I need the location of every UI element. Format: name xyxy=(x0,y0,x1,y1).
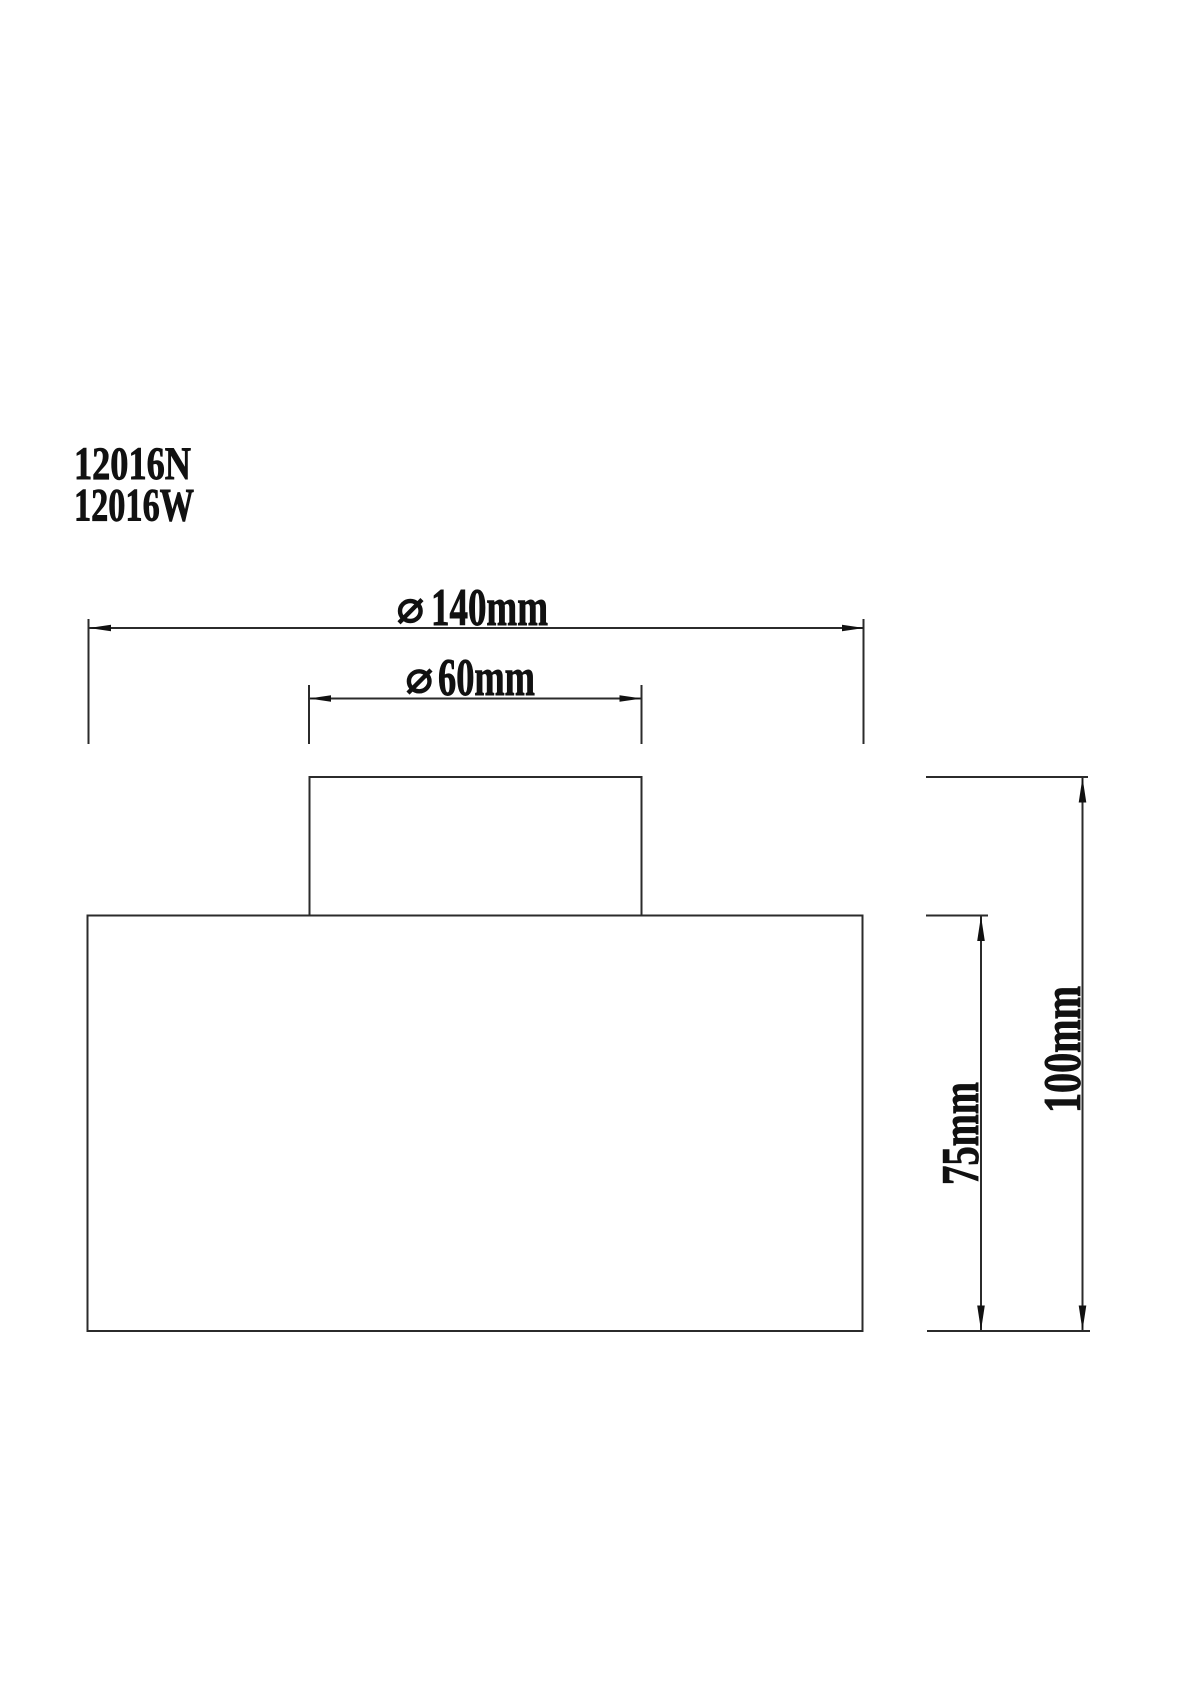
svg-text:12016W: 12016W xyxy=(74,480,194,532)
svg-text:100mm: 100mm xyxy=(1034,986,1092,1113)
svg-text:75mm: 75mm xyxy=(932,1082,990,1185)
